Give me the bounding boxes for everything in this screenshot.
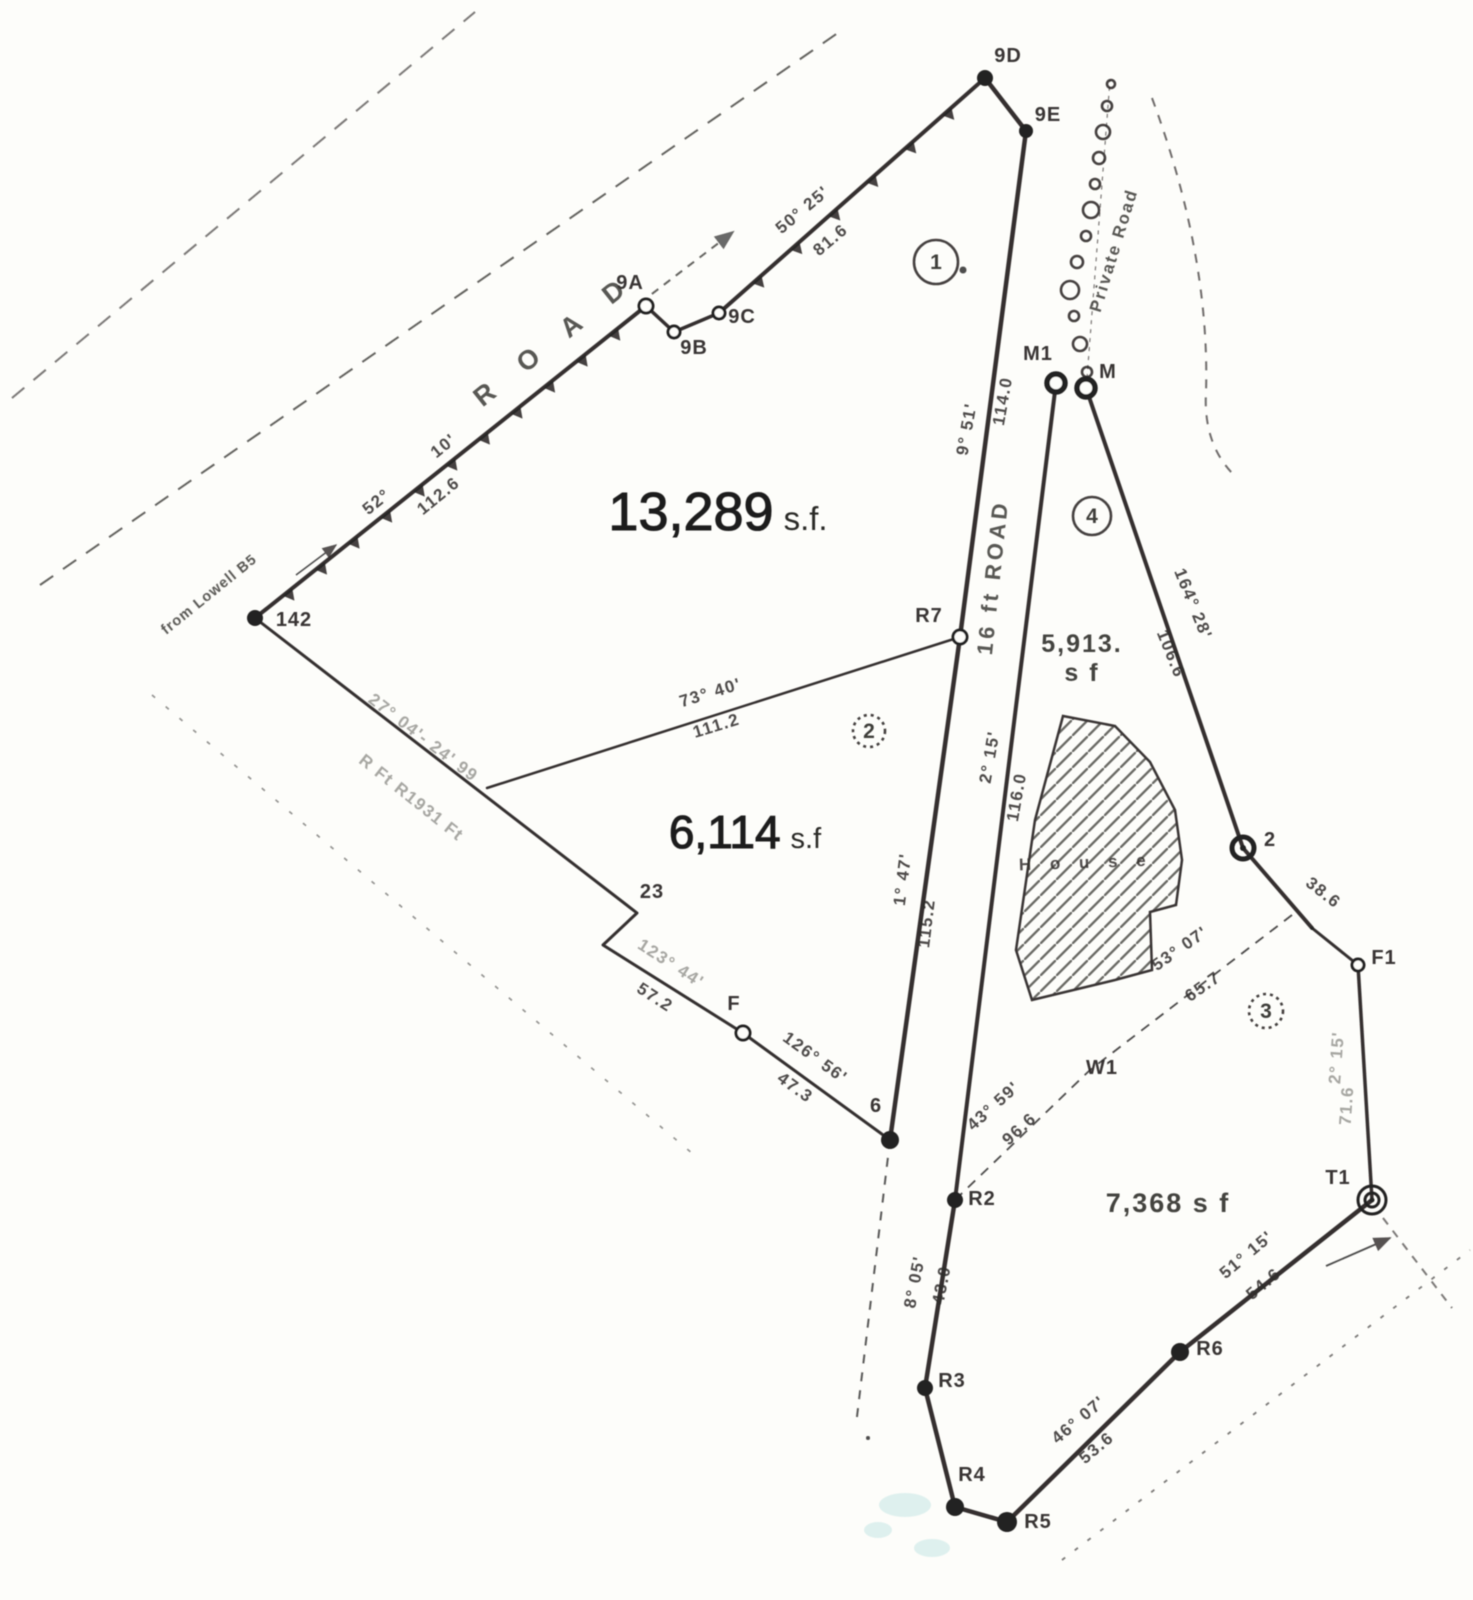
private-road-wall-stone (1096, 125, 1110, 139)
driveway-dash (640, 232, 733, 303)
point-label-9e: 9E (1035, 104, 1061, 126)
point-label-23: 23 (640, 881, 664, 903)
measurement-label-29: 47.3 (774, 1068, 817, 1106)
point-label-f1: F1 (1371, 947, 1396, 969)
measurement-label-13: 1° 47' (890, 852, 915, 907)
private-road-wall-stone (1090, 179, 1100, 189)
measurement-label-15: 164° 28' (1170, 566, 1216, 643)
parcel-number-2: 2 (863, 720, 875, 743)
plat-canvas: H o u s e9D9E9A9B9C142R7M1M2F1T1W16F23R2… (0, 0, 1473, 1600)
measurement-label-11: 2° 15' (976, 729, 1004, 784)
point-label-m1: M1 (1023, 343, 1053, 365)
survey-point-9e (1019, 124, 1033, 138)
private-road-wall-stone (1107, 80, 1115, 88)
survey-point-f1 (1352, 959, 1364, 971)
private-road-wall-stone (1081, 231, 1091, 241)
arrow-bottom-right (1326, 1238, 1390, 1266)
point-label-6: 6 (870, 1095, 882, 1117)
measurement-label-33: 54.6 (1242, 1264, 1284, 1304)
scan-smudge (914, 1539, 950, 1557)
road-nw-edge (12, 12, 475, 398)
survey-point-9b (668, 326, 680, 338)
private-road-wall-stone (1073, 337, 1087, 351)
area-label-parcel-4-line1: s f (1064, 659, 1099, 687)
survey-point-t1-dot (1370, 1198, 1375, 1203)
measurement-label-19: 71.6 (1336, 1085, 1358, 1125)
measurement-label-27: 57.2 (633, 979, 676, 1016)
survey-point-r2 (947, 1192, 963, 1208)
point-label-r5: R5 (1024, 1511, 1052, 1533)
private-road-wall-stone (1093, 152, 1105, 164)
measurement-label-24: 8° 05' (900, 1254, 929, 1310)
dash-below-6 (856, 1140, 890, 1425)
road-label-road-16ft: 16 ft ROAD (972, 498, 1013, 656)
parcel-number-4: 4 (1086, 505, 1098, 528)
bound-sw (255, 618, 890, 1140)
point-label-r3: R3 (938, 1370, 966, 1392)
survey-point-r4 (946, 1498, 964, 1516)
point-label-r2: R2 (968, 1188, 996, 1210)
survey-point-r5 (997, 1512, 1017, 1532)
survey-point-r3 (917, 1380, 933, 1396)
private-road-wall-stone (1069, 311, 1079, 321)
point-label-t1: T1 (1325, 1167, 1350, 1189)
parcel-number-1: 1 (930, 251, 942, 274)
private-road-wall-stone (1102, 101, 1112, 111)
measurement-label-4: 112.6 (413, 473, 463, 519)
measurement-label-14: 115.2 (914, 898, 939, 949)
private-road-wall-stone (1071, 256, 1083, 268)
private-road-wall-stone (1061, 281, 1079, 299)
survey-point-9a (639, 299, 653, 313)
scan-smudge (879, 1493, 931, 1517)
private-road-east-edge (1152, 98, 1235, 476)
area-label-parcel-1: 13,289s.f. (608, 482, 827, 542)
measurement-label-9: 9° 51' (953, 401, 981, 456)
point-label-2: 2 (1264, 829, 1276, 851)
row-lower-left (152, 695, 700, 1160)
area-label-parcel-4-line0: 5,913. (1041, 630, 1123, 658)
private-road-wall-stone (1083, 202, 1099, 218)
area-label-parcel-3-line0: 7,368 s f (1106, 1188, 1231, 1218)
point-label-f: F (727, 993, 740, 1015)
bound-9a-9b-9c (646, 306, 719, 332)
survey-point-6 (881, 1131, 899, 1149)
point-label-r4: R4 (958, 1464, 986, 1486)
survey-point-9c (713, 307, 725, 319)
point-label-9b: 9B (680, 337, 708, 359)
point-label-9c: 9C (728, 306, 756, 328)
road-label-from-lowell: from Lowell B5 (159, 552, 261, 639)
point-label-r6: R6 (1196, 1338, 1224, 1360)
measurement-label-17: 38.6 (1302, 873, 1345, 912)
measurement-label-25: 43.0 (929, 1264, 955, 1306)
bound-south (925, 1200, 1372, 1522)
dash-past-t (1383, 1218, 1452, 1308)
point-label-142: 142 (276, 609, 312, 631)
measurement-label-21: 65.7 (1181, 968, 1224, 1006)
survey-point-r6 (1171, 1343, 1189, 1361)
measurement-label-23: 96.6 (998, 1109, 1040, 1149)
bound-9d-9e (985, 78, 1026, 131)
area-label-parcel-2: 6,114s.f (669, 806, 822, 858)
point-label-r7: R7 (915, 605, 943, 627)
survey-point-f (736, 1026, 750, 1040)
parcel-number-3: 3 (1260, 1000, 1272, 1023)
point-label-m: M (1099, 361, 1117, 383)
point-label-w1: W1 (1086, 1057, 1118, 1079)
survey-point-m1 (1047, 374, 1065, 392)
survey-point-r7 (953, 630, 967, 644)
measurement-label-20: 53° 07' (1148, 922, 1211, 974)
scan-dot (960, 267, 967, 274)
survey-point-2-dot (1240, 845, 1246, 851)
measurement-label-0: 50° 25' (772, 182, 833, 238)
survey-point-142 (247, 610, 263, 626)
scan-smudge (864, 1522, 892, 1538)
scan-dot (866, 1436, 870, 1440)
bound-2-f1 (1312, 928, 1358, 965)
road-label-private-road: Private Road (1086, 186, 1142, 314)
bound-f1-t (1358, 965, 1372, 1200)
point-label-9d: 9D (994, 45, 1022, 67)
survey-point-9d (977, 70, 993, 86)
measurement-label-18: 2° 15' (1325, 1031, 1348, 1085)
line-73-40 (487, 637, 960, 788)
measurement-label-5: 73° 40' (677, 674, 744, 711)
scanned-plat-page: H o u s e9D9E9A9B9C142R7M1M2F1T1W16F23R2… (0, 0, 1473, 1600)
measurement-label-16: 106.6 (1153, 627, 1189, 681)
survey-point-m (1077, 379, 1095, 397)
